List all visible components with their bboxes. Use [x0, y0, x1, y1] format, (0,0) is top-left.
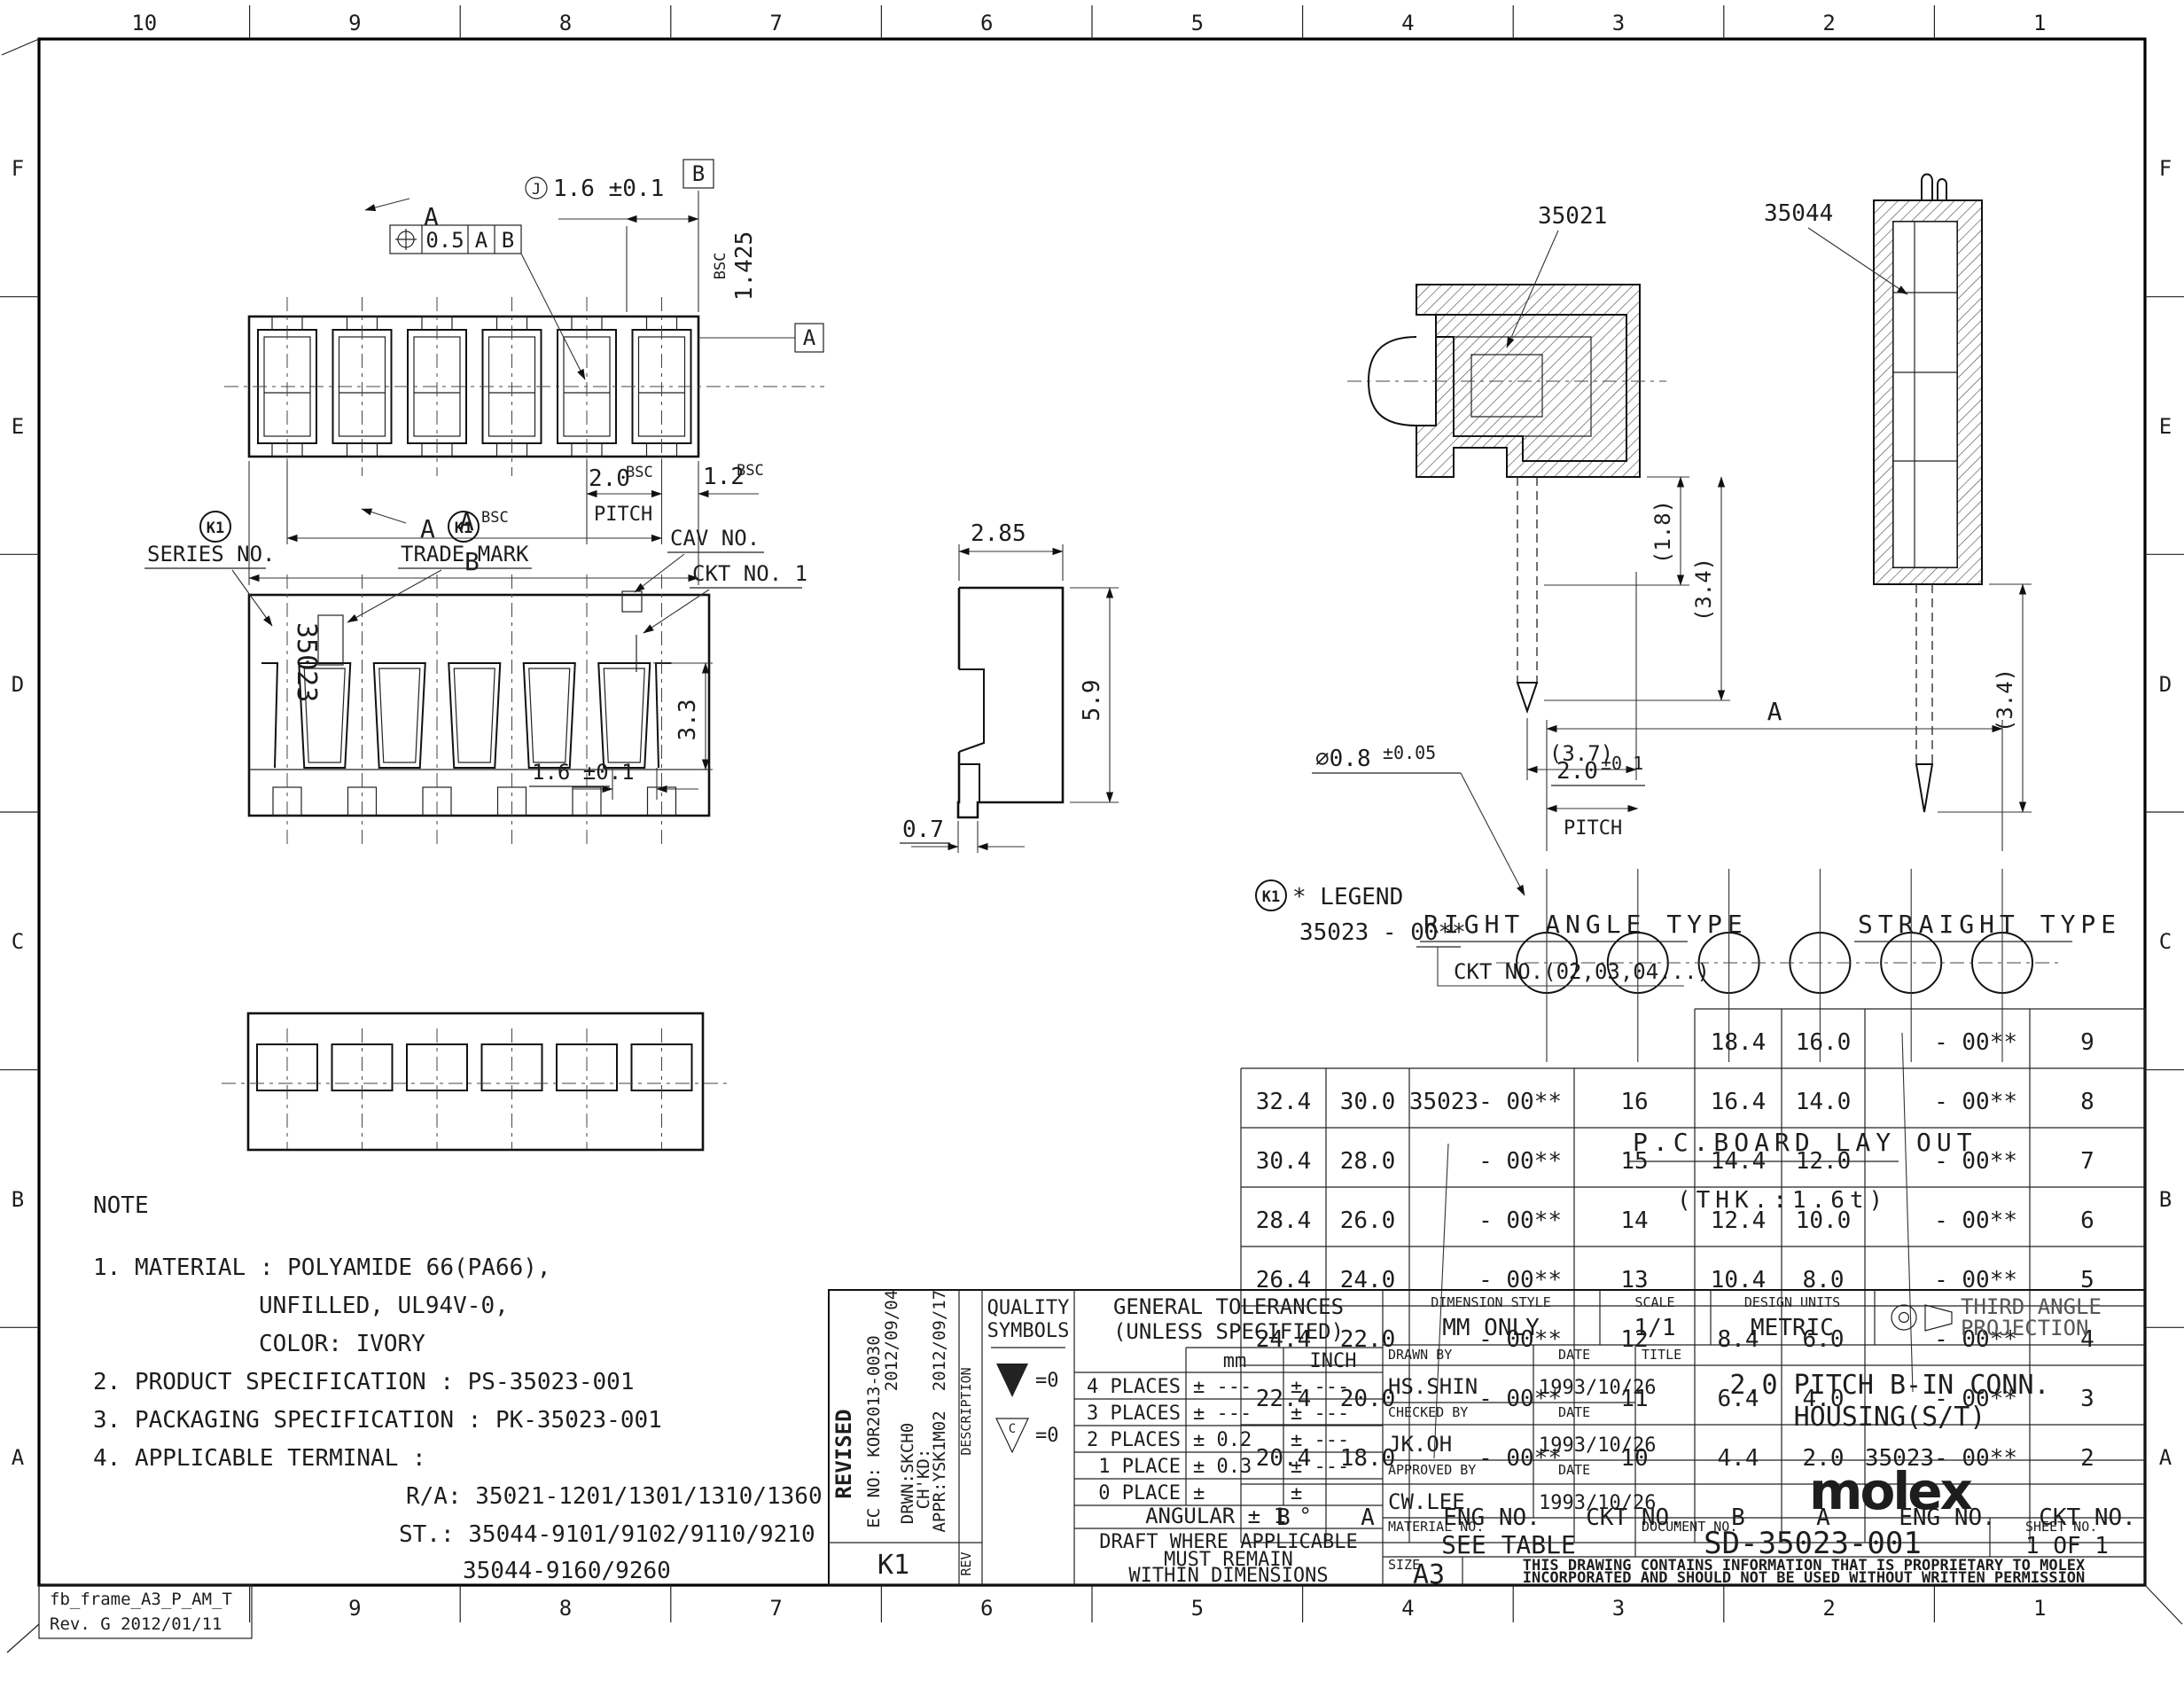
dim-3-3: 3.3 — [675, 699, 701, 741]
zone-ticks-left — [0, 297, 39, 1328]
zone-number-top: 5 — [1191, 11, 1204, 35]
tol-row-inch: ± --- — [1291, 1376, 1349, 1398]
zone-number-bottom: 3 — [1612, 1596, 1625, 1621]
quality-c: C — [1009, 1422, 1016, 1436]
dim-1-8: (1.8) — [1650, 500, 1675, 564]
trade-mark-label: TRADE MARK — [401, 542, 529, 567]
tol-col-mm: mm — [1223, 1350, 1247, 1372]
table-cell-b: 12.4 — [1711, 1207, 1767, 1234]
table-cell-ckt: 15 — [1620, 1148, 1648, 1175]
right-angle-caption: RIGHT ANGLE TYPE — [1423, 910, 1748, 939]
table-cell-ckt: 8 — [2080, 1089, 2094, 1115]
approved-date: 1993/10/26 — [1539, 1492, 1656, 1514]
design-units-value: METRIC — [1751, 1315, 1834, 1341]
section-a-lower: A — [420, 514, 435, 543]
tol-row-label: 0 PLACE — [1098, 1482, 1181, 1504]
datum-b: B BSC 1.425 — [683, 160, 758, 301]
zone-letter-right: D — [2159, 672, 2172, 697]
zone-number-top: 2 — [1822, 11, 1835, 35]
zone-number-top: 1 — [2033, 11, 2046, 35]
dim-3-4-st: (3.4) — [1993, 668, 2017, 732]
drawing-title-1: 2.0 PITCH B-IN CONN. — [1729, 1370, 2049, 1401]
zone-number-bottom: 5 — [1191, 1596, 1204, 1621]
note-line: UNFILLED, UL94V-0, — [259, 1293, 509, 1319]
projection-label-2: PROJECTION — [1961, 1316, 2089, 1340]
table-cell-ckt: 6 — [2080, 1207, 2094, 1234]
table-cell-ckt: 14 — [1620, 1207, 1648, 1234]
filled-triangle-icon — [996, 1364, 1028, 1397]
zone-letter-left: D — [12, 672, 24, 697]
table-cell-a: 12.0 — [1796, 1148, 1852, 1175]
zone-letter-right: C — [2159, 929, 2172, 954]
table-cell-eng: - 00** — [1934, 1148, 2017, 1175]
molex-logo: molex — [1809, 1461, 1973, 1521]
note-line: R/A: 35021-1201/1301/1310/1360 — [406, 1483, 823, 1510]
tol-row-label: 3 PLACES — [1087, 1403, 1181, 1425]
table-cell-b: 18.4 — [1711, 1029, 1767, 1056]
zone-number-bottom: 6 — [980, 1596, 993, 1621]
table-cell-ckt: 7 — [2080, 1148, 2094, 1175]
checked-date: 1993/10/26 — [1539, 1434, 1656, 1457]
zone-number-bottom: 8 — [559, 1596, 572, 1621]
dim-5-9: 5.9 — [1079, 680, 1105, 722]
scale-label: SCALE — [1634, 1294, 1674, 1310]
zone-number-bottom: 2 — [1822, 1596, 1835, 1621]
pcb-layout: A 2.0 ±0.1 PITCH ∅0.8 ±0.05 P.C.BOARD LA… — [1312, 697, 2058, 1214]
tol-row-inch: ± — [1291, 1482, 1302, 1504]
zone-number-bottom: 7 — [769, 1596, 782, 1621]
zone-ticks-bottom — [250, 1585, 1935, 1622]
pcb-dims: A 2.0 ±0.1 PITCH ∅0.8 ±0.05 — [1312, 697, 2002, 895]
rev-date-1: 2012/09/04 — [882, 1290, 901, 1391]
table-cell-b: 16.4 — [1711, 1089, 1767, 1115]
general-tolerances: GENERAL TOLERANCES (UNLESS SPECIFIED) mm… — [1074, 1294, 1383, 1587]
zone-letter-left: B — [12, 1187, 24, 1212]
date-label: DATE — [1558, 1462, 1590, 1478]
note-heading: NOTE — [93, 1192, 149, 1219]
zone-number-bottom: 1 — [2033, 1596, 2046, 1621]
table-cell-a: 16.0 — [1796, 1029, 1852, 1056]
title-cell: TITLE 2.0 PITCH B-IN CONN. HOUSING(S/T) — [1642, 1347, 2050, 1433]
note-line: COLOR: IVORY — [259, 1331, 425, 1357]
front-view: 35023 K1 SERIES NO. K1 TRADE MARK CAV NO… — [144, 512, 807, 849]
ec-no: EC NO: KOR2013-0030 — [864, 1335, 884, 1528]
terminal-35021-label: 35021 — [1538, 203, 1607, 230]
size-value: A3 — [1413, 1559, 1445, 1590]
signature-rows: DRAWN BY HS.SHIN DATE 1993/10/26 CHECKED… — [1388, 1347, 1656, 1514]
zone-number-bottom: 9 — [348, 1596, 361, 1621]
zone-letter-right: A — [2159, 1445, 2172, 1470]
table-cell-a: 30.0 — [1340, 1089, 1396, 1115]
cav-no-label: CAV NO. — [670, 526, 760, 551]
terminal-35044-label: 35044 — [1764, 200, 1833, 227]
title-label: TITLE — [1642, 1347, 1681, 1363]
zone-number-top: 3 — [1612, 11, 1625, 35]
drawn-date: 1993/10/26 — [1539, 1377, 1656, 1399]
table-cell-a: 22.0 — [1340, 1326, 1396, 1353]
table-cell-eng: - 00** — [1934, 1207, 2017, 1234]
dim-pitch-bsc: BSC — [626, 464, 653, 481]
circled-j-letter: J — [532, 181, 541, 199]
revision-strip: REVISED EC NO: KOR2013-0030 2012/09/04 D… — [829, 1290, 982, 1585]
dim-1-425: 1.425 — [731, 231, 758, 301]
dim-2-85: 2.85 — [971, 520, 1026, 547]
table-cell-b: 4.4 — [1718, 1445, 1759, 1472]
pcb-hole-dia-tol: ±0.05 — [1383, 742, 1436, 763]
quality-label-1: QUALITY — [987, 1297, 1070, 1319]
table-cell-a: 14.0 — [1796, 1089, 1852, 1115]
front-base-notches — [273, 787, 676, 816]
right-angle-dims: (1.8) (3.4) (3.7) — [1527, 477, 1730, 780]
zone-letter-right: F — [2159, 156, 2172, 181]
zone-letter-right: E — [2159, 414, 2172, 439]
zone-number-top: 7 — [769, 11, 782, 35]
table-cell-a: 26.0 — [1340, 1207, 1396, 1234]
legend-title: * LEGEND — [1292, 884, 1403, 910]
table-cell-eng: - 00** — [1934, 1029, 2017, 1056]
zone-letter-left: E — [12, 414, 24, 439]
quality-eq-1: =0 — [1035, 1370, 1059, 1392]
dim-1-6-front: 1.6 ±0.1 — [532, 760, 635, 785]
table-cell-ckt: 2 — [2080, 1445, 2094, 1472]
zone-number-top: 6 — [980, 11, 993, 35]
table-cell-ckt: 16 — [1620, 1089, 1648, 1115]
table-cell-eng: - 00** — [1478, 1148, 1562, 1175]
table-cell-ckt: 3 — [2080, 1386, 2094, 1412]
rev-appr: APPR:YSK1M02 — [930, 1411, 949, 1532]
note-line: 4. APPLICABLE TERMINAL : — [93, 1445, 426, 1472]
rev-label: REV — [958, 1551, 974, 1575]
right-angle-view: 35021 (1.8) (3.4) (3.7) RIGHT ANGLE TYPE — [1347, 203, 1748, 942]
series-no-callout: K1 SERIES NO. — [144, 512, 276, 626]
approved-by-label: APPROVED BY — [1388, 1462, 1476, 1478]
legend-k1: K1 — [1262, 888, 1280, 906]
tol-row-inch: ± --- — [1291, 1403, 1349, 1425]
fcf-datum-b: B — [502, 228, 514, 253]
zone-number-top: 9 — [348, 11, 361, 35]
table-cell-b: 30.4 — [1256, 1148, 1312, 1175]
document-no-value: SD-35023-001 — [1704, 1526, 1922, 1561]
top-view-dims: 2.0 BSC PITCH 1.2 BSC A BSC B — [249, 461, 764, 585]
quality-label-2: SYMBOLS — [987, 1320, 1070, 1342]
date-label: DATE — [1558, 1404, 1590, 1420]
frame-id: fb_frame_A3_P_AM_T — [50, 1590, 232, 1609]
section-a-upper: A — [424, 202, 439, 231]
k1-flag-1: K1 — [207, 520, 224, 537]
straight-caption: STRAIGHT TYPE — [1858, 910, 2121, 939]
table-cell-b: 32.4 — [1256, 1089, 1312, 1115]
dim-1-6-top: J 1.6 ±0.1 — [526, 176, 698, 312]
zone-ticks-right — [2145, 297, 2184, 1328]
checked-by-label: CHECKED BY — [1388, 1404, 1468, 1420]
material-no-value: SEE TABLE — [1441, 1530, 1576, 1559]
rev-id: K1 — [877, 1550, 909, 1581]
datum-a: A — [698, 324, 823, 352]
tol-row-label: 2 PLACES — [1087, 1429, 1181, 1451]
drawn-by-label: DRAWN BY — [1388, 1347, 1452, 1363]
checked-by-value: JK.OH — [1388, 1432, 1452, 1457]
pcb-pitch: 2.0 — [1556, 758, 1598, 785]
table-cell-ckt: 9 — [2080, 1029, 2094, 1056]
drawing-canvas: 10987654321987654321FFEEDDCCBBAA fb_fram… — [0, 0, 2184, 1688]
dim-pitch-word: PITCH — [594, 504, 652, 526]
scale-value: 1/1 — [1634, 1315, 1676, 1341]
zone-letter-left: A — [12, 1445, 25, 1470]
pcb-thickness: (THK.:1.6t) — [1677, 1187, 1888, 1214]
tol-row-inch: ± --- — [1291, 1429, 1349, 1451]
description-label: DESCRIPTION — [958, 1367, 974, 1455]
dim-0-7: 0.7 — [902, 817, 944, 843]
tol-angular: ANGULAR ± 1 ° — [1145, 1504, 1312, 1528]
drawing-title-2: HOUSING(S/T) — [1794, 1402, 1986, 1433]
zone-ticks-top — [250, 5, 1935, 39]
approved-by-value: CW.LEE — [1388, 1489, 1465, 1514]
note-line: 3. PACKAGING SPECIFICATION : PK-35023-00… — [93, 1407, 662, 1434]
tol-row-mm: ± --- — [1193, 1376, 1252, 1398]
table-cell-b: 14.4 — [1711, 1148, 1767, 1175]
pcb-dim-a: A — [1767, 697, 1782, 726]
k1-flag-2: K1 — [455, 520, 472, 537]
zone-letter-left: C — [12, 929, 24, 954]
dim-1-2-bsc: BSC — [737, 462, 764, 480]
table-cell-a: 28.0 — [1340, 1148, 1396, 1175]
dim-1-6-text: 1.6 ±0.1 — [553, 176, 664, 202]
sheet-no-value: 1 OF 1 — [2025, 1533, 2109, 1559]
note-line: 2. PRODUCT SPECIFICATION : PS-35023-001 — [93, 1369, 634, 1395]
frame-id-box: fb_frame_A3_P_AM_T Rev. G 2012/01/11 — [39, 1585, 252, 1638]
dimension-style-value: MM ONLY — [1442, 1315, 1540, 1341]
tol-row-mm: ± 0.2 — [1193, 1429, 1252, 1451]
quality-symbols: QUALITY SYMBOLS =0 C =0 — [987, 1297, 1070, 1452]
tol-col-inch: INCH — [1310, 1350, 1357, 1372]
tol-row-label: 4 PLACES — [1087, 1376, 1181, 1398]
zone-letter-right: B — [2159, 1187, 2172, 1212]
drawn-by-value: HS.SHIN — [1388, 1374, 1478, 1399]
drawing-sheet: 10987654321987654321FFEEDDCCBBAA fb_fram… — [0, 0, 2184, 1688]
straight-view: 35044 (3.4) STRAIGHT TYPE — [1764, 175, 2121, 942]
zone-letter-left: F — [12, 156, 24, 181]
zone-number-top: 8 — [559, 11, 572, 35]
dim-3-4-ra: (3.4) — [1691, 558, 1716, 621]
dim-a-bsc: BSC — [481, 509, 509, 527]
table-cell-a: 10.0 — [1796, 1207, 1852, 1234]
bottom-view — [222, 1013, 730, 1150]
dimension-style-label: DIMENSION STYLE — [1431, 1294, 1550, 1310]
note-line: 35044-9160/9260 — [463, 1558, 671, 1584]
front-view-dims: 3.3 1.6 ±0.1 — [529, 663, 713, 800]
pcb-pitch-tol: ±0.1 — [1601, 753, 1643, 774]
molded-part-number: 35023 — [291, 622, 322, 702]
revised-label: REVISED — [831, 1409, 856, 1498]
datum-a-label: A — [803, 325, 816, 350]
top-view: 0.5 A B J 1.6 ±0.1 B BSC 1.425 A A A — [224, 160, 824, 585]
notes: NOTE 1. MATERIAL : POLYAMIDE 66(PA66), U… — [93, 1192, 823, 1584]
table-continuation-mark — [1902, 1033, 1913, 1392]
fcf-value: 0.5 — [425, 228, 464, 253]
position-tolerance-frame: 0.5 A B — [390, 225, 585, 379]
tol-title-1: GENERAL TOLERANCES — [1113, 1294, 1344, 1319]
tol-row-mm: ± — [1193, 1482, 1205, 1504]
table-cell-eng: - 00** — [1478, 1207, 1562, 1234]
table-header-a: A — [1361, 1504, 1375, 1531]
part-number-table: 18.416.0- 00**932.430.035023- 00**1630.4… — [1241, 1009, 2145, 1543]
pcb-hole-dia: ∅0.8 — [1315, 746, 1371, 772]
tol-row-inch: ± --- — [1291, 1456, 1349, 1478]
position-tolerance-icon — [395, 229, 417, 250]
tol-row-mm: ± 0.3 — [1193, 1456, 1252, 1478]
table-cell-eng: - 00** — [1934, 1089, 2017, 1115]
table-cell-eng: 35023- 00** — [1409, 1089, 1562, 1115]
proprietary-line-2: INCORPORATED AND SHOULD NOT BE USED WITH… — [1523, 1569, 2086, 1587]
note-line: 1. MATERIAL : POLYAMIDE 66(PA66), — [93, 1254, 551, 1281]
tol-title-2: (UNLESS SPECIFIED) — [1113, 1319, 1344, 1344]
quality-eq-2: =0 — [1035, 1425, 1059, 1447]
legend-ckt-note: CKT NO.(02,03,04...) — [1454, 959, 1710, 984]
zone-number-top: 4 — [1401, 11, 1414, 35]
dim-pitch: 2.0 — [589, 465, 630, 492]
tol-row-mm: ± --- — [1193, 1403, 1252, 1425]
frame-rev: Rev. G 2012/01/11 — [50, 1614, 222, 1634]
tol-draft-3: WITHIN DIMENSIONS — [1128, 1565, 1328, 1587]
ckt-no-label: CKT NO. 1 — [692, 561, 807, 586]
table-cell-b: 28.4 — [1256, 1207, 1312, 1234]
pcb-pitch-word: PITCH — [1564, 817, 1622, 840]
bsc-vert: BSC — [712, 253, 729, 280]
trade-mark-callout: K1 TRADE MARK — [347, 512, 532, 622]
zone-number-bottom: 4 — [1401, 1596, 1414, 1621]
rev-date-2: 2012/09/17 — [930, 1290, 949, 1391]
header-row: DIMENSION STYLE MM ONLY SCALE 1/1 DESIGN… — [1431, 1294, 2102, 1341]
fcf-datum-a: A — [475, 228, 488, 253]
zone-number-top: 10 — [131, 11, 157, 35]
side-view: 2.85 5.9 0.7 — [900, 520, 1119, 853]
note-line: ST.: 35044-9101/9102/9110/9210 — [399, 1521, 815, 1548]
straight-dims: (3.4) — [1938, 584, 2032, 812]
series-no-label: SERIES NO. — [147, 542, 276, 567]
design-units-label: DESIGN UNITS — [1744, 1294, 1840, 1310]
legend-part-number: 35023 - 00** — [1299, 919, 1466, 946]
date-label: DATE — [1558, 1347, 1590, 1363]
tol-row-label: 1 PLACE — [1098, 1456, 1181, 1478]
datum-b-label: B — [692, 161, 705, 186]
